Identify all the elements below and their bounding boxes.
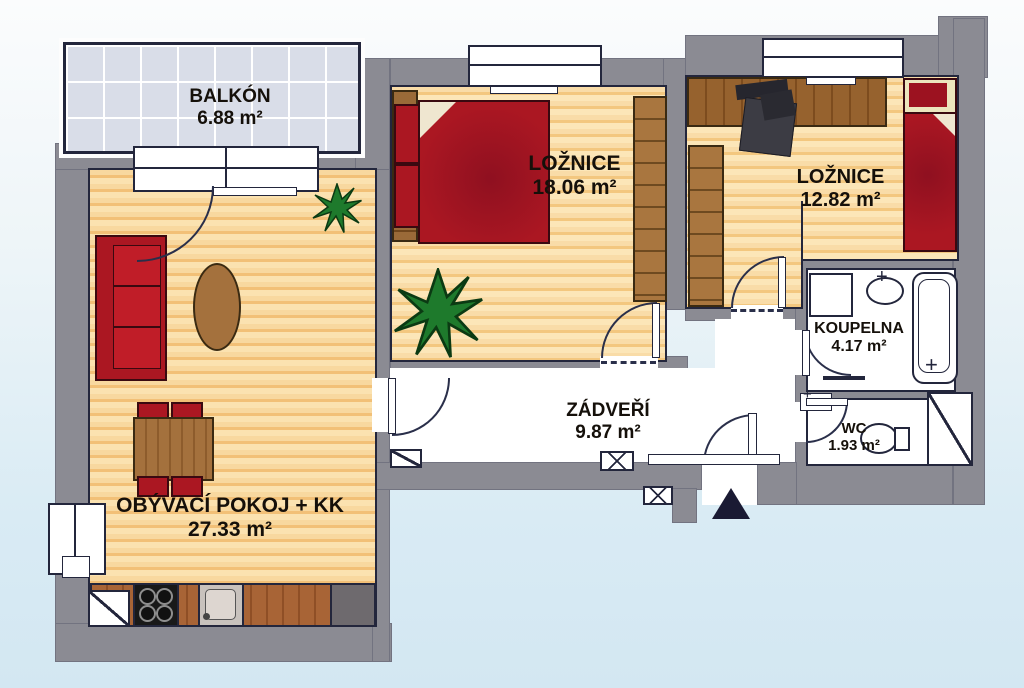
kitchen-sink — [198, 583, 244, 627]
label-bathroom: KOUPELNA 4.17 m² — [800, 320, 918, 357]
bedroom1-door-dashes — [601, 361, 656, 364]
plant-small — [312, 183, 362, 233]
hallway-area: 9.87 m² — [528, 422, 688, 444]
coffee-table — [193, 263, 241, 351]
shaft — [927, 392, 973, 466]
label-bedroom2: LOŽNICE 12.82 m² — [763, 166, 918, 212]
balcony-name: BALKÓN — [145, 86, 315, 108]
plant-large — [393, 268, 483, 358]
kitchen-counter-end — [330, 583, 376, 627]
bedroom1-door-leaf — [652, 303, 660, 358]
bedroom1-window — [468, 45, 602, 87]
label-hallway: ZÁDVEŘÍ 9.87 m² — [528, 400, 688, 444]
towel-rail — [823, 376, 865, 380]
bedroom2-area: 12.82 m² — [763, 189, 918, 212]
bedroom1-area: 18.06 m² — [492, 176, 657, 200]
bathtub-drain-icon: + — [925, 352, 938, 378]
bathroom-area: 4.17 m² — [800, 338, 918, 356]
balcony-window — [225, 146, 319, 192]
threshold-ledge — [648, 454, 780, 465]
wall-entry-right — [757, 462, 797, 505]
wall-hall-bottom-stub — [672, 488, 697, 523]
bedroom2-name: LOŽNICE — [763, 166, 918, 189]
label-balcony: BALKÓN 6.88 m² — [145, 86, 315, 130]
floor-plan: + + + BALKÓN 6.88 m² LOŽNICE 18.06 m² — [0, 0, 1024, 688]
living-radiator — [213, 187, 297, 196]
label-wc: WC 1.93 m² — [798, 420, 910, 455]
fridge — [88, 590, 130, 627]
bed1-blanket-fold — [420, 102, 456, 138]
label-living-room: OBÝVACÍ POKOJ + KK 27.33 m² — [90, 494, 370, 542]
bed2-pillow — [909, 83, 947, 107]
electrical-box — [600, 451, 634, 471]
wall-living-bottom — [55, 623, 392, 662]
bedroom2-door-leaf — [778, 257, 786, 308]
wc-name: WC — [798, 420, 910, 437]
bedroom2-door-dashes — [731, 309, 783, 312]
sofa-seat — [113, 245, 161, 369]
wall-left — [55, 143, 90, 662]
bedroom2-radiator — [806, 77, 856, 85]
balcony-area: 6.88 m² — [145, 108, 315, 130]
wall-vent — [62, 556, 90, 578]
bathroom-name: KOUPELNA — [800, 320, 918, 338]
duct-symbol — [390, 449, 422, 468]
desk-chair-back — [760, 89, 796, 120]
bed2-blanket-fold — [933, 114, 955, 136]
basin-tap-icon: + — [876, 266, 888, 289]
bedroom1-name: LOŽNICE — [492, 152, 657, 176]
dining-table — [133, 417, 214, 481]
bed2-pillow-zone — [903, 78, 957, 116]
living-hall-door-leaf — [388, 378, 396, 434]
bedroom1-radiator — [490, 86, 558, 94]
entrance-triangle — [712, 488, 750, 519]
label-bedroom1: LOŽNICE 18.06 m² — [492, 152, 657, 200]
living-room-area: 27.33 m² — [90, 518, 370, 542]
wc-door-leaf — [806, 398, 848, 406]
stove — [133, 583, 179, 627]
electrical-box — [643, 486, 673, 505]
bedroom2-wardrobe — [688, 145, 724, 307]
washing-machine — [809, 273, 853, 317]
hallway-name: ZÁDVEŘÍ — [528, 400, 688, 422]
bedroom2-window — [762, 38, 904, 78]
living-room-name: OBÝVACÍ POKOJ + KK — [90, 494, 370, 518]
wc-area: 1.93 m² — [798, 437, 910, 454]
